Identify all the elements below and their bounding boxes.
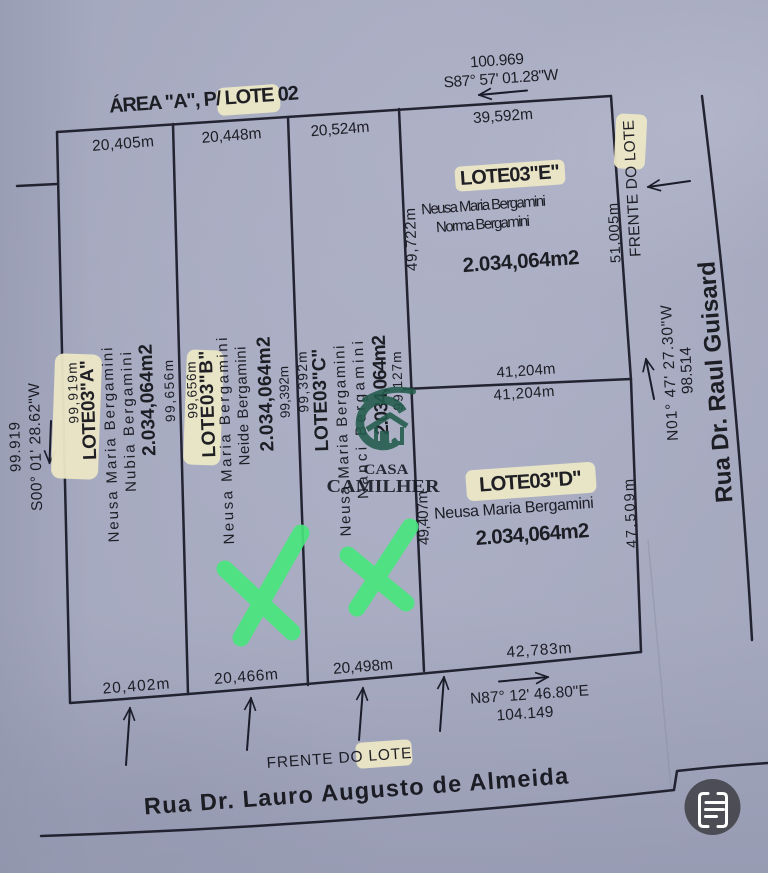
svg-text:LOTE03"C": LOTE03"C" <box>309 348 334 452</box>
svg-text:2.034,064m2: 2.034,064m2 <box>253 336 278 452</box>
svg-text:49,722m: 49,722m <box>402 208 421 272</box>
svg-text:LOTE03"A": LOTE03"A" <box>77 360 101 461</box>
svg-text:51,005m: 51,005m <box>605 203 624 264</box>
svg-text:98.514: 98.514 <box>677 346 696 394</box>
svg-text:S00° 01' 28.62"W: S00° 01' 28.62"W <box>26 382 46 511</box>
svg-text:2.034,064m2: 2.034,064m2 <box>136 344 161 457</box>
svg-text:49,407m: 49,407m <box>414 491 433 546</box>
svg-text:99,392m: 99,392m <box>276 366 293 418</box>
svg-text:99.919: 99.919 <box>6 422 24 472</box>
svg-text:CAMILHER: CAMILHER <box>327 476 440 496</box>
